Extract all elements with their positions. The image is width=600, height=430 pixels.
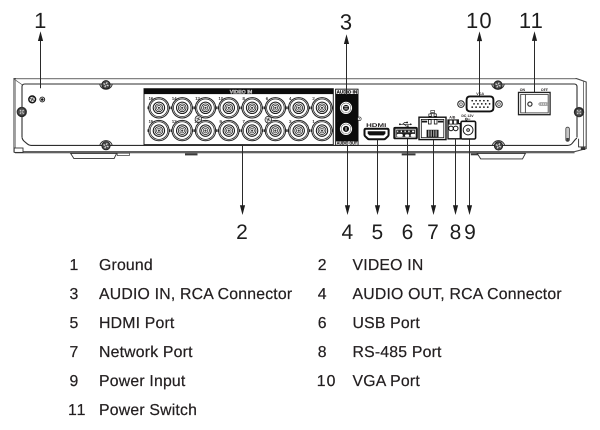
svg-text:14: 14 [172,96,177,101]
svg-text:OFF: OFF [541,88,549,92]
svg-text:AUDIO IN, RCA Connector: AUDIO IN, RCA Connector [99,286,292,303]
svg-text:RS-485 Port: RS-485 Port [353,344,443,361]
svg-text:USB Port: USB Port [353,315,421,332]
svg-text:Power Input: Power Input [99,373,186,390]
svg-text:AUDIO OUT: AUDIO OUT [337,141,358,146]
svg-text:2: 2 [236,221,248,244]
svg-text:1: 1 [70,257,79,274]
svg-text:11: 11 [519,8,544,33]
svg-text:10: 10 [219,96,224,101]
svg-text:12: 12 [195,96,200,101]
svg-text:1: 1 [34,8,46,33]
svg-text:VGA: VGA [476,92,484,96]
svg-text:3: 3 [340,9,352,34]
svg-text:9: 9 [70,373,79,390]
svg-text:5: 5 [70,315,79,332]
svg-text:15: 15 [149,119,154,124]
svg-text:AUDIO OUT, RCA Connector: AUDIO OUT, RCA Connector [353,286,562,303]
svg-text:3: 3 [70,286,79,303]
svg-text:13: 13 [172,119,177,124]
svg-text:6: 6 [402,221,414,244]
svg-text:8: 8 [450,221,462,244]
svg-text:2: 2 [318,257,327,274]
svg-text:VIDEO IN: VIDEO IN [353,257,424,274]
svg-text:11: 11 [68,402,86,419]
svg-text:ON: ON [520,88,526,92]
svg-text:Ground: Ground [99,257,153,274]
svg-text:DC 12V: DC 12V [461,114,474,118]
svg-text:HDMI Port: HDMI Port [99,315,175,332]
svg-text:4: 4 [342,221,354,244]
svg-text:7: 7 [427,221,439,244]
svg-text:1: 1 [337,98,339,102]
svg-text:Power Switch: Power Switch [99,402,197,419]
svg-text:6: 6 [318,315,327,332]
svg-text:2: 2 [337,119,339,123]
svg-text:10: 10 [317,373,337,390]
svg-text:10: 10 [466,8,493,33]
svg-text:VIDEO IN: VIDEO IN [230,89,253,95]
svg-text:VGA Port: VGA Port [353,373,421,390]
svg-text:8: 8 [318,344,327,361]
svg-text:9: 9 [464,221,476,244]
svg-text:16: 16 [149,96,154,101]
svg-text:5: 5 [372,221,384,244]
svg-text:A/B: A/B [449,115,456,119]
svg-text:4: 4 [318,286,327,303]
svg-text:Network Port: Network Port [99,344,193,361]
svg-text:7: 7 [70,344,79,361]
